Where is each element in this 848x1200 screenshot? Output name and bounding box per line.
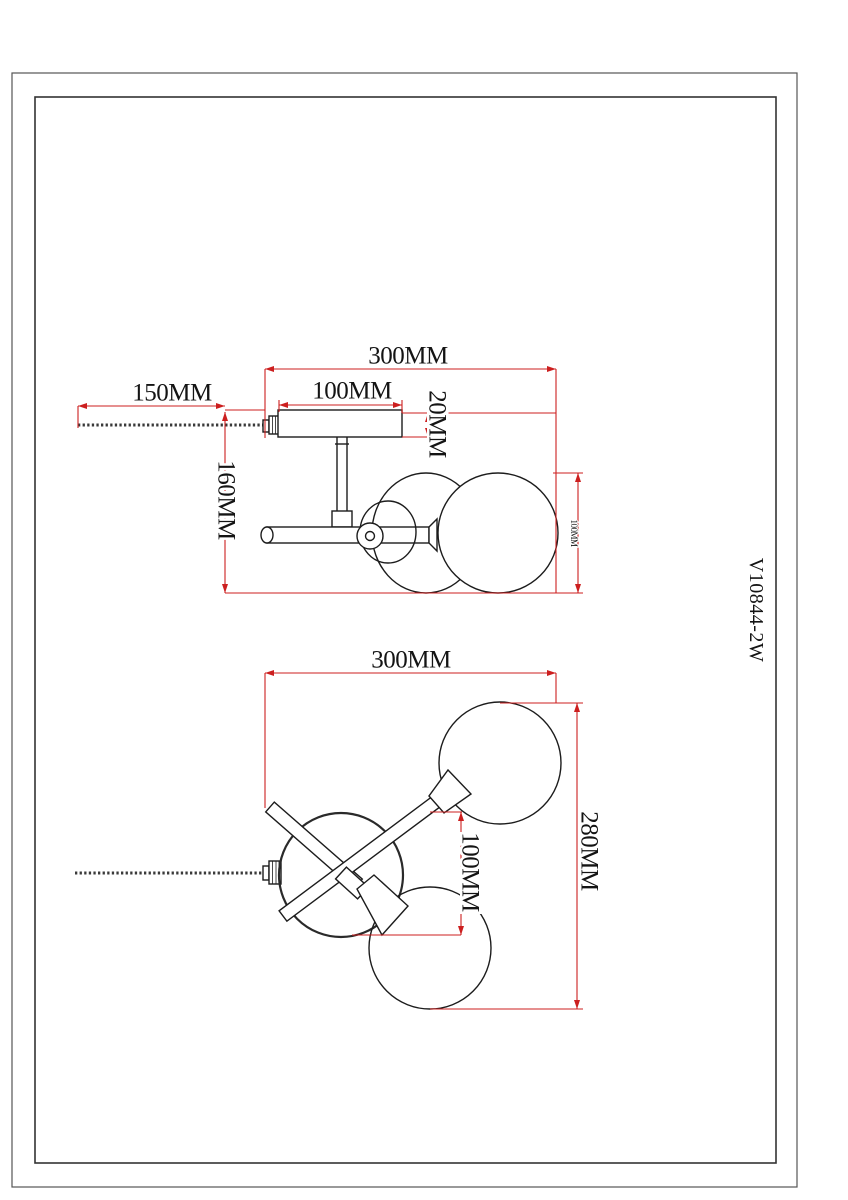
dim-label-globe-offset: 100MM [457,832,484,912]
dim-label-overall-depth: 280MM [576,811,603,891]
arrow-down [575,584,581,593]
drawing-canvas: 300MM 150MM 100MM 20MM 160MM 100MM [0,0,848,1200]
arrow-left [265,366,274,372]
dim-label-plate-width: 100MM [312,378,392,405]
dim-label-rod-length: 150MM [132,380,212,407]
dim-label-overall-width-plan: 300MM [371,647,451,674]
dim-label-overall-width-side: 300MM [368,343,448,370]
side-pivot-joint [357,523,383,549]
part-number: V10844-2W [745,558,767,662]
side-view: 300MM 150MM 100MM 20MM 160MM 100MM [78,343,583,594]
plan-globe-top [439,702,561,824]
dim-label-fixture-height: 160MM [213,460,240,540]
arrow-right [547,366,556,372]
arrow-right [393,402,402,408]
side-stem-collar [332,511,352,527]
plan-rod-cap [263,866,269,880]
drawing-sheet: 300MM 150MM 100MM 20MM 160MM 100MM [0,0,848,1200]
arrow-down [458,926,464,935]
side-socket-cone [429,519,437,551]
dim-label-plate-thickness: 20MM [424,390,451,458]
arrow-right [216,403,225,409]
side-arm-endcap [261,527,273,543]
side-mounting-plate [278,410,402,437]
arrow-down [222,584,228,593]
arrow-up [222,412,228,421]
side-rod-cap [263,420,269,432]
arrow-right [547,670,556,676]
plan-socket-bottom [357,875,408,935]
arrow-up [574,703,580,712]
plan-arm-right [279,796,441,921]
arrow-left [78,403,87,409]
outer-border [12,73,797,1187]
plan-view: 300MM 280MM 100MM [75,647,603,1010]
side-arm [267,527,429,543]
arrow-up [575,473,581,482]
arrow-down [574,1000,580,1009]
dim-label-globe-height: 100MM [569,519,579,547]
side-globe-front [438,473,558,593]
arrow-left [265,670,274,676]
arrow-up [458,812,464,821]
arrow-left [279,402,288,408]
